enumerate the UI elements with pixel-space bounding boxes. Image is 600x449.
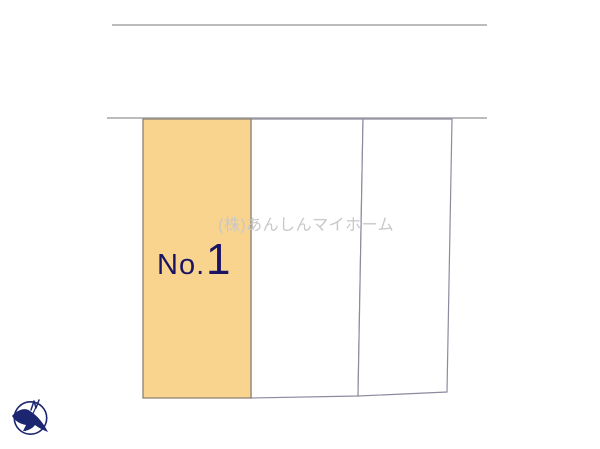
lot-1-label-prefix: No. bbox=[157, 249, 205, 281]
site-plan-svg: (株)あんしんマイホーム No. 1 bbox=[0, 0, 600, 449]
lot-2-shape bbox=[251, 119, 363, 398]
north-compass-icon bbox=[12, 400, 48, 434]
lot-3-shape bbox=[358, 119, 452, 396]
site-plan-canvas: (株)あんしんマイホーム No. 1 bbox=[0, 0, 600, 449]
watermark-text: (株)あんしんマイホーム bbox=[218, 216, 394, 234]
lot-1-label-number: 1 bbox=[206, 235, 230, 284]
